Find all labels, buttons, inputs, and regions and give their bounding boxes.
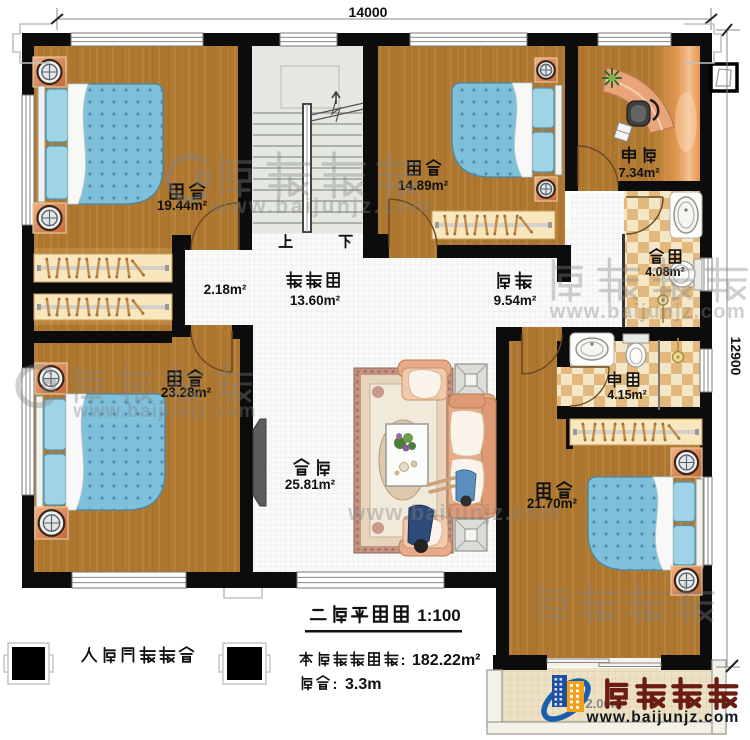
svg-text::: : (333, 676, 338, 693)
svg-text:4.15m²: 4.15m² (607, 388, 647, 402)
svg-text:13.60m²: 13.60m² (290, 293, 341, 308)
svg-text:182.22m²: 182.22m² (412, 652, 481, 669)
svg-text:14000: 14000 (349, 4, 388, 20)
svg-text:www.baijunjz.com: www.baijunjz.com (549, 301, 747, 323)
svg-text::: : (401, 652, 406, 669)
svg-text:2.18m²: 2.18m² (204, 282, 247, 297)
svg-text:www.baijunjz.com: www.baijunjz.com (210, 195, 432, 218)
svg-text:1:100: 1:100 (417, 606, 460, 625)
svg-text:www.baijunjz.com: www.baijunjz.com (72, 401, 256, 422)
svg-text:7.34m²: 7.34m² (618, 165, 660, 180)
svg-text:www.baijunjz.com: www.baijunjz.com (586, 709, 740, 726)
svg-text:3.3m: 3.3m (345, 676, 381, 693)
svg-text:25.81m²: 25.81m² (285, 477, 336, 492)
svg-text:9.54m²: 9.54m² (494, 293, 537, 308)
svg-text:www.baijunjz.com: www.baijunjz.com (347, 500, 562, 525)
svg-text:12900: 12900 (728, 337, 744, 376)
